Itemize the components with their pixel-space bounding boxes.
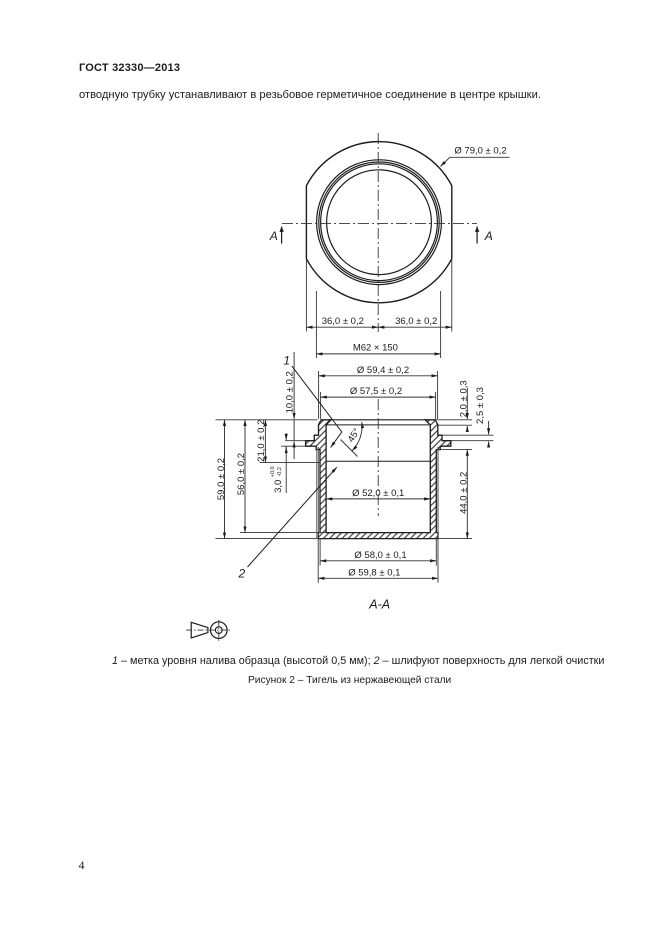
svg-text:2,5 ± 0,3: 2,5 ± 0,3: [475, 387, 486, 424]
svg-text:Ø 58,0 ± 0,1: Ø 58,0 ± 0,1: [354, 550, 406, 561]
svg-text:36,0 ± 0,2: 36,0 ± 0,2: [395, 316, 437, 327]
svg-text:Ø 59,4 ± 0,2: Ø 59,4 ± 0,2: [357, 365, 409, 376]
svg-text:А: А: [269, 229, 278, 243]
svg-text:1: 1: [283, 354, 290, 368]
svg-text:21,0 ± 0,2: 21,0 ± 0,2: [256, 420, 267, 462]
svg-text:2,0 ± 0,3: 2,0 ± 0,3: [458, 380, 469, 417]
svg-text:М62 × 150: М62 × 150: [353, 343, 398, 354]
svg-text:А-А: А-А: [368, 597, 390, 611]
svg-text:Ø 52,0 ± 0,1: Ø 52,0 ± 0,1: [352, 488, 404, 499]
svg-text:45°: 45°: [346, 426, 363, 444]
svg-text:2: 2: [238, 567, 246, 581]
svg-text:+0,0: +0,0: [270, 466, 276, 477]
svg-text:Ø 59,8 ± 0,1: Ø 59,8 ± 0,1: [348, 567, 400, 578]
svg-text:56,0 ± 0,2: 56,0 ± 0,2: [236, 453, 247, 495]
svg-text:59,0 ± 0,2: 59,0 ± 0,2: [216, 458, 227, 500]
svg-text:Ø 79,0 ± 0,2: Ø 79,0 ± 0,2: [454, 146, 506, 157]
svg-text:3,0: 3,0: [273, 480, 284, 493]
svg-text:44,0 ± 0,2: 44,0 ± 0,2: [458, 472, 469, 514]
svg-text:Ø 57,5 ± 0,2: Ø 57,5 ± 0,2: [350, 386, 402, 397]
svg-text:36,0 ± 0,2: 36,0 ± 0,2: [322, 316, 364, 327]
svg-text:А: А: [484, 229, 493, 243]
svg-text:-0,2: -0,2: [277, 467, 283, 476]
svg-text:10,0 ± 0,2: 10,0 ± 0,2: [285, 371, 296, 413]
